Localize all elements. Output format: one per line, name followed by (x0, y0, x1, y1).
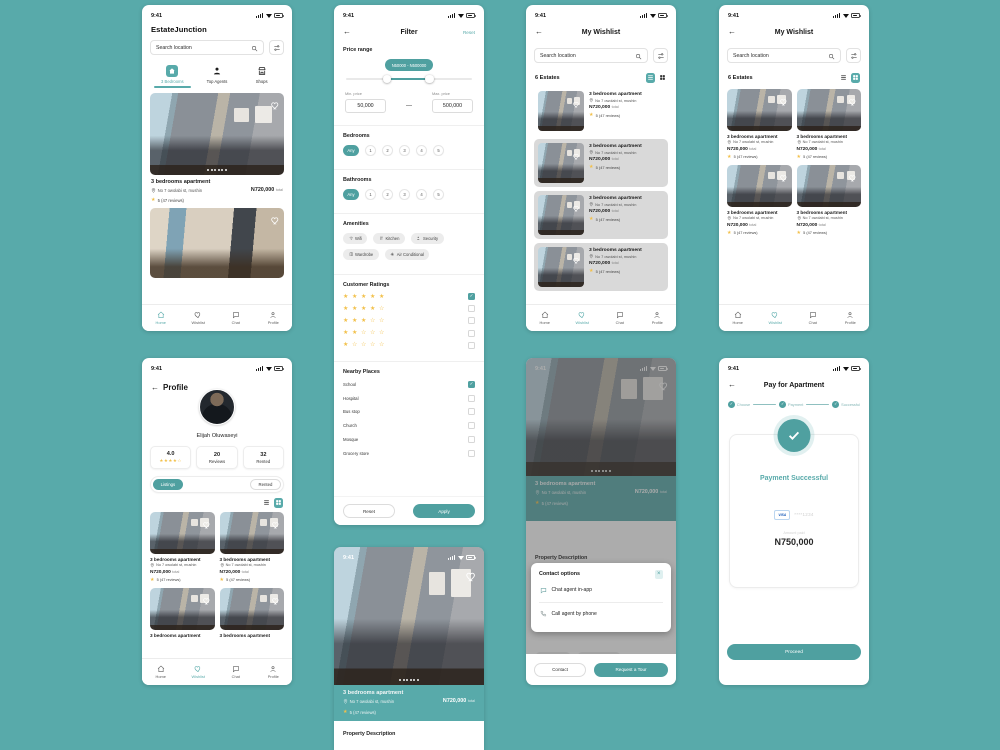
nearby-places-label: Nearby Places (334, 369, 484, 375)
rating-checkbox-1[interactable] (468, 342, 475, 349)
favorite-heart-icon[interactable] (849, 93, 857, 111)
nearby-church: Church (334, 419, 484, 433)
search-icon (828, 47, 835, 65)
list-view-icon[interactable] (262, 498, 272, 508)
listing-rating: 5 (47 reviews) (343, 709, 475, 715)
listing-address: No 7 owolabi st, mushin (797, 216, 862, 221)
rating-row-4: ★ ★ ★ ★ ☆ (334, 303, 484, 315)
chip-wardrobe[interactable]: Wardrobe (343, 249, 379, 260)
listing-rating: 5 (47 reviews) (797, 230, 862, 236)
search-row: Search location (526, 42, 676, 67)
wishlist-item[interactable]: 3 bedrooms apartment No 7 owolabi st, mu… (534, 191, 668, 239)
nav-profile[interactable]: Profile (639, 305, 677, 331)
proceed-button[interactable]: Proceed (727, 644, 861, 660)
battery-icon (658, 13, 667, 18)
favorite-heart-icon[interactable] (849, 169, 857, 187)
nearby-school: School (334, 377, 484, 391)
air-conditional-icon (390, 252, 395, 257)
request-tour-button[interactable]: Request a Tour (594, 663, 668, 677)
wishlist-item[interactable]: 3 bedrooms apartment No 7 owolabi st, mu… (534, 87, 668, 135)
location-pin-icon (589, 150, 594, 155)
listing-price: N720,000 total (220, 570, 285, 575)
bathrooms-1[interactable]: 1 (365, 189, 376, 200)
favorite-heart-icon[interactable] (272, 516, 280, 534)
nav-profile[interactable]: Profile (255, 659, 293, 685)
nav-wishlist[interactable]: Wishlist (180, 305, 218, 331)
status-bar: 9:41 (719, 5, 869, 22)
star-icon (589, 112, 594, 118)
search-input[interactable]: Search location (150, 40, 264, 55)
bathrooms-2[interactable]: 2 (382, 189, 393, 200)
listing-card[interactable]: 3 bedrooms apartment No 7 owolabi st, mu… (797, 165, 862, 236)
min-price-label: Min. price (345, 91, 386, 96)
location-pin-icon (151, 188, 156, 193)
listing-info: 3 bedrooms apartment No 7 owolabi st, mu… (142, 175, 292, 203)
listing-card[interactable]: 3 bedrooms apartment No 7 owolabi st, mu… (150, 512, 215, 583)
detail-action-bar: Contact Request a Tour (526, 654, 676, 685)
min-price-input[interactable]: 50,000 (345, 99, 386, 113)
status-time: 9:41 (728, 366, 739, 372)
wifi-icon (266, 14, 272, 18)
star-icon (589, 216, 594, 222)
listing-rating: 5 (47 reviews) (727, 154, 792, 160)
min-max-row: Min. price 50,000 — Max. price 500,000 (334, 84, 484, 113)
location-pin-icon (589, 254, 594, 259)
favorite-heart-icon[interactable] (203, 516, 211, 534)
listing-title: 3 bedrooms apartment (589, 196, 664, 201)
check-icon (779, 401, 786, 408)
page-title: My Wishlist (526, 29, 676, 36)
nav-profile[interactable]: Profile (832, 305, 870, 331)
listing-title: 3 bedrooms apartment (727, 210, 792, 215)
listing-card[interactable]: 3 bedrooms apartment No 7 owolabi st, mu… (220, 512, 285, 583)
listing-address: No 7 owolabi st, mushin (589, 254, 664, 259)
listing-title: 3 bedrooms apartment (797, 134, 862, 139)
listing-title: 3 bedrooms apartment (727, 134, 792, 139)
battery-icon (851, 13, 860, 18)
status-time: 9:41 (343, 13, 354, 19)
rating-checkbox-2[interactable] (468, 330, 475, 337)
location-pin-icon (797, 216, 802, 221)
listing-card[interactable]: 3 bedrooms apartment (150, 588, 215, 638)
nav-wishlist[interactable]: Wishlist (757, 305, 795, 331)
agent-icon (211, 65, 223, 77)
payment-stepper: Choose Payment Successful (719, 395, 869, 408)
filter-action-bar: Reset Apply (334, 496, 484, 525)
listing-price: N720,000 total (797, 223, 862, 228)
nearby-grocery-store: Grocery store (334, 446, 484, 460)
signal-icon (448, 555, 455, 560)
chip-kitchen[interactable]: Kitchen (373, 233, 404, 244)
status-icons (833, 13, 860, 18)
amount-paid-value: N750,000 (730, 537, 858, 547)
wifi-icon (458, 14, 464, 18)
listing-title: 3 bedrooms apartment (220, 633, 285, 638)
nearby-mosque: Mosque (334, 433, 484, 447)
battery-icon (274, 366, 283, 371)
rating-row-5: ★ ★ ★ ★ ★ (334, 291, 484, 303)
favorite-heart-icon[interactable] (271, 97, 280, 115)
nearby-bus-stop: Bus stop (334, 405, 484, 419)
location-pin-icon (150, 563, 155, 568)
estates-count-row: 6 Estates (719, 67, 869, 87)
listing-price: N720,000 total (727, 223, 792, 228)
listing-address: No 7 owolabi st, mushin (589, 150, 664, 155)
back-arrow-icon[interactable] (535, 28, 543, 36)
close-icon[interactable] (655, 570, 664, 579)
star-icon (589, 164, 594, 170)
signal-icon (833, 366, 840, 371)
status-icons (256, 13, 283, 18)
bedrooms-4[interactable]: 4 (416, 145, 427, 156)
location-pin-icon (797, 140, 802, 145)
slider-active-track (385, 78, 430, 80)
page-title: Filter (334, 29, 484, 36)
listing-price: N720,000 total (443, 698, 475, 704)
bedrooms-3[interactable]: 3 (399, 145, 410, 156)
listing-title: 3 bedrooms apartment (150, 557, 215, 562)
status-time: 9:41 (343, 555, 354, 561)
house-icon (166, 65, 178, 77)
listing-card[interactable]: 3 bedrooms apartment No 7 owolabi st, mu… (727, 165, 792, 236)
location-pin-icon (727, 140, 732, 145)
grid-view-icon[interactable] (274, 498, 284, 508)
bedrooms-2[interactable]: 2 (382, 145, 393, 156)
location-pin-icon (727, 216, 732, 221)
bathrooms-any[interactable]: Any (343, 189, 359, 200)
tab-3-bedrooms[interactable]: 3 Bedrooms (150, 65, 195, 88)
step-choose: Choose (728, 401, 750, 408)
listing-address: No 7 owolabi st, mushin (797, 140, 862, 145)
wifi-icon (650, 14, 656, 18)
listing-title: 3 bedrooms apartment (589, 248, 664, 253)
chat-bubble-icon (540, 587, 547, 594)
status-icons (448, 555, 475, 560)
star-icon (343, 709, 348, 715)
bathrooms-4[interactable]: 4 (416, 189, 427, 200)
payment-receipt-card: Payment Successful VISA ****1234 Amount … (729, 434, 859, 588)
property-summary: 3 bedrooms apartment No 7 owolabi st, mu… (334, 685, 484, 721)
battery-icon (274, 13, 283, 18)
reset-button[interactable]: Reset (343, 504, 395, 518)
status-time: 9:41 (728, 13, 739, 19)
screen-wishlist-list: 9:41 My Wishlist Search location 6 Estat… (526, 5, 676, 331)
rating-row-3: ★ ★ ★ ☆ ☆ (334, 315, 484, 327)
bathrooms-3[interactable]: 3 (399, 189, 410, 200)
status-icons (833, 366, 860, 371)
battery-icon (466, 13, 475, 18)
reset-link[interactable]: Reset (463, 30, 475, 35)
card-row: VISA ****1234 (730, 510, 858, 520)
filter-button[interactable] (653, 48, 668, 63)
view-toggle (839, 73, 861, 83)
estates-count: 6 Estates (535, 75, 560, 81)
signal-icon (256, 13, 263, 18)
listing-title: 3 bedrooms apartment (797, 210, 862, 215)
nearby-checkbox-hospital[interactable] (468, 395, 475, 402)
wishlist-item[interactable]: 3 bedrooms apartment No 7 owolabi st, mu… (534, 139, 668, 187)
screen-property-detail: 9:41 3 bedrooms apartment No 7 owolabi s… (334, 547, 484, 750)
listing-photo (538, 91, 584, 131)
search-icon (635, 47, 642, 65)
star-icon (150, 577, 155, 583)
listing-address: No 7 owolabi st, mushin (589, 202, 664, 207)
signal-icon (448, 13, 455, 18)
listing-address: No 7 owolabi st, mushin (589, 98, 664, 103)
favorite-heart-icon[interactable] (466, 569, 477, 587)
listing-title: 3 bedrooms apartment (151, 179, 283, 185)
amenities-chips: Wifi Kitchen Security Wardrobe Air Condi… (334, 227, 484, 260)
contact-button[interactable]: Contact (534, 663, 586, 677)
customer-ratings-label: Customer Ratings (334, 282, 484, 288)
status-bar: 9:41 (142, 5, 292, 22)
bottom-nav: Home Wishlist Chat Profile (526, 304, 676, 331)
favorite-heart-icon[interactable] (272, 592, 280, 610)
favorite-heart-icon[interactable] (203, 592, 211, 610)
nav-home[interactable]: Home (142, 305, 180, 331)
page-title: Profile (163, 383, 188, 392)
filter-button[interactable] (846, 48, 861, 63)
wifi-icon (843, 14, 849, 18)
check-icon (728, 401, 735, 408)
apply-button[interactable]: Apply (413, 504, 475, 518)
stat-rating: 4.0 ★★★★☆ (150, 446, 191, 469)
nav-home[interactable]: Home (526, 305, 564, 331)
search-icon (251, 39, 258, 57)
listing-photo (538, 195, 584, 235)
status-icons (448, 13, 475, 18)
price-slider[interactable] (346, 74, 472, 84)
stat-rented: 32 Rented (243, 446, 284, 469)
listing-card[interactable]: 3 bedrooms apartment No 7 owolabi st, mu… (727, 89, 792, 160)
listing-rating: 5 (47 reviews) (589, 216, 664, 222)
wishlist-item[interactable]: 3 bedrooms apartment No 7 owolabi st, mu… (534, 243, 668, 291)
back-arrow-icon[interactable] (728, 381, 736, 389)
status-bar: 9:41 (334, 5, 484, 22)
listing-photo-2[interactable] (150, 208, 284, 278)
listing-rating: 5 (47 reviews) (797, 154, 862, 160)
rating-checkbox-5[interactable] (468, 293, 475, 300)
rating-row-1: ★ ☆ ☆ ☆ ☆ (334, 339, 484, 351)
list-view-icon[interactable] (646, 73, 656, 83)
filter-button[interactable] (269, 40, 284, 55)
payment-success-text: Payment Successful (730, 475, 858, 482)
carousel-dots (334, 679, 484, 681)
bedrooms-5[interactable]: 5 (433, 145, 444, 156)
app-title: EstateJunction (142, 22, 292, 34)
slider-handle-max[interactable] (425, 75, 434, 84)
status-bar: 9:41 (142, 358, 292, 375)
property-photo[interactable]: 9:41 (334, 547, 484, 685)
favorite-heart-icon[interactable] (271, 212, 280, 230)
listing-rating: 5 (47 reviews) (589, 268, 664, 274)
modal-backdrop[interactable] (526, 358, 676, 685)
nav-chat[interactable]: Chat (794, 305, 832, 331)
chip-air-conditional[interactable]: Air Conditional (385, 249, 430, 260)
favorite-heart-icon[interactable] (780, 169, 788, 187)
star-icon (151, 197, 156, 203)
max-price-input[interactable]: 500,000 (432, 99, 473, 113)
carousel-dots (150, 169, 284, 171)
favorite-heart-icon[interactable] (573, 199, 580, 217)
visa-card-icon: VISA (774, 510, 790, 520)
bottom-nav: Home Wishlist Chat Profile (142, 658, 292, 685)
stat-reviews: 20 Reviews (196, 446, 237, 469)
listing-photo[interactable] (150, 93, 284, 175)
listing-photo (150, 588, 215, 630)
step-payment: Payment (779, 401, 803, 408)
tab-rented[interactable]: Rented (250, 479, 282, 491)
screen-home: 9:41 EstateJunction Search location 3 Be… (142, 5, 292, 331)
listing-price: N720,000 total (797, 147, 862, 152)
phone-icon (540, 610, 547, 617)
screen-wishlist-grid: 9:41 My Wishlist Search location 6 Estat… (719, 5, 869, 331)
signal-icon (833, 13, 840, 18)
listing-photo (797, 89, 862, 131)
grid-view-icon[interactable] (851, 73, 861, 83)
status-time: 9:41 (151, 366, 162, 372)
header: Pay for Apartment (719, 375, 869, 395)
listing-price: N720,000 total (150, 570, 215, 575)
listing-photo (538, 143, 584, 183)
listing-card[interactable]: 3 bedrooms apartment (220, 588, 285, 638)
tab-shops[interactable]: Shops (239, 65, 284, 88)
wifi-icon (458, 556, 464, 560)
grid-view-icon[interactable] (658, 73, 668, 83)
star-icon (727, 230, 732, 236)
listing-photo (727, 165, 792, 207)
star-icon (727, 154, 732, 160)
wifi-icon (266, 367, 272, 371)
bathrooms-options: Any 1 2 3 4 5 (334, 183, 484, 200)
favorite-heart-icon[interactable] (573, 251, 580, 269)
listing-price: N720,000 total (589, 209, 664, 214)
bottom-nav: Home Wishlist Chat Profile (719, 304, 869, 331)
status-icons (256, 366, 283, 371)
rating-stars: ★★★★☆ (159, 458, 182, 464)
nearby-checkbox-school[interactable] (468, 381, 475, 388)
tab-listings[interactable]: Listings (153, 479, 184, 491)
listing-title: 3 bedrooms apartment (220, 557, 285, 562)
listing-rating: 5 (47 reviews) (589, 164, 664, 170)
back-arrow-icon[interactable] (343, 28, 351, 36)
range-dash: — (406, 103, 412, 113)
tab-top-agents[interactable]: Top Agents (195, 65, 240, 88)
modal-title: Contact options (539, 571, 580, 577)
bedrooms-options: Any 1 2 3 4 5 (334, 139, 484, 156)
wifi-icon (843, 367, 849, 371)
header: Filter Reset (334, 22, 484, 42)
status-time: 9:41 (151, 13, 162, 19)
estates-count-row: 6 Estates (526, 67, 676, 87)
nearby-checkbox-mosque[interactable] (468, 436, 475, 443)
status-bar: 9:41 (526, 5, 676, 22)
search-row: Search location (142, 34, 292, 59)
rating-row-2: ★ ★ ☆ ☆ ☆ (334, 327, 484, 339)
chip-wifi[interactable]: Wifi (343, 233, 367, 244)
slider-handle-min[interactable] (383, 75, 392, 84)
favorite-heart-icon[interactable] (573, 95, 580, 113)
search-input[interactable]: Search location (727, 48, 841, 63)
listing-photo (797, 165, 862, 207)
slider-value-pill: N50000 - N500000 (385, 59, 434, 71)
wishlist-grid: 3 bedrooms apartment No 7 owolabi st, mu… (719, 87, 869, 236)
listing-address: No 7 owolabi st, mushin (343, 699, 394, 704)
listing-photo (150, 512, 215, 554)
back-arrow-icon[interactable] (728, 28, 736, 36)
listing-card[interactable]: 3 bedrooms apartment No 7 owolabi st, mu… (797, 89, 862, 160)
listing-address: No 7 owolabi st, mushin (151, 188, 202, 193)
search-row: Search location (719, 42, 869, 67)
favorite-heart-icon[interactable] (573, 147, 580, 165)
listing-price: N720,000 total (251, 187, 283, 193)
nav-home[interactable]: Home (142, 659, 180, 685)
rating-checkbox-4[interactable] (468, 305, 475, 312)
avatar[interactable] (199, 389, 235, 425)
listing-title: 3 bedrooms apartment (589, 92, 664, 97)
price-range-label: Price range (334, 47, 484, 53)
search-input[interactable]: Search location (534, 48, 648, 63)
nav-chat[interactable]: Chat (217, 305, 255, 331)
location-pin-icon (343, 699, 348, 704)
property-description-label: Property Description (334, 721, 484, 741)
nav-chat[interactable]: Chat (217, 659, 255, 685)
listing-photo (220, 512, 285, 554)
listing-rating: 5 (47 reviews) (220, 577, 285, 583)
category-tabs: 3 Bedrooms Top Agents Shops (142, 59, 292, 88)
signal-icon (256, 366, 263, 371)
search-placeholder: Search location (156, 45, 251, 51)
listing-price: N720,000 total (589, 105, 664, 110)
status-bar: 9:41 (334, 547, 484, 564)
nearby-checkbox-grocery-store[interactable] (468, 450, 475, 457)
location-pin-icon (589, 98, 594, 103)
nav-profile[interactable]: Profile (255, 305, 293, 331)
rating-checkbox-3[interactable] (468, 317, 475, 324)
bathrooms-5[interactable]: 5 (433, 189, 444, 200)
nav-home[interactable]: Home (719, 305, 757, 331)
header: My Wishlist (526, 22, 676, 42)
favorite-heart-icon[interactable] (780, 93, 788, 111)
chat-agent-option[interactable]: Chat agent in-app (539, 579, 663, 602)
nearby-checkbox-bus-stop[interactable] (468, 408, 475, 415)
nav-chat[interactable]: Chat (601, 305, 639, 331)
listing-price: N720,000 total (589, 261, 664, 266)
status-bar: 9:41 (719, 358, 869, 375)
nearby-hospital: Hospital (334, 391, 484, 405)
search-placeholder: Search location (540, 53, 635, 59)
listing-address: No 7 owolabi st, mushin (220, 563, 285, 568)
page-title: My Wishlist (719, 29, 869, 36)
star-icon (797, 154, 802, 160)
step-successful: Successful (832, 401, 860, 408)
listing-title: 3 bedrooms apartment (150, 633, 215, 638)
list-view-icon[interactable] (839, 73, 849, 83)
profile-tabs: Listings Rented (150, 476, 284, 493)
nearby-checkbox-church[interactable] (468, 422, 475, 429)
screen-payment: 9:41 Pay for Apartment Choose Payment Su… (719, 358, 869, 685)
nav-wishlist[interactable]: Wishlist (180, 659, 218, 685)
nav-wishlist[interactable]: Wishlist (564, 305, 602, 331)
chip-security[interactable]: Security (411, 233, 444, 244)
back-arrow-icon[interactable] (151, 384, 159, 392)
contact-options-modal: Contact options Chat agent in-app Call a… (531, 563, 671, 632)
card-number: ****1234 (794, 512, 813, 517)
header: My Wishlist (719, 22, 869, 42)
bedrooms-1[interactable]: 1 (365, 145, 376, 156)
call-agent-option[interactable]: Call agent by phone (539, 602, 663, 625)
bedrooms-any[interactable]: Any (343, 145, 359, 156)
